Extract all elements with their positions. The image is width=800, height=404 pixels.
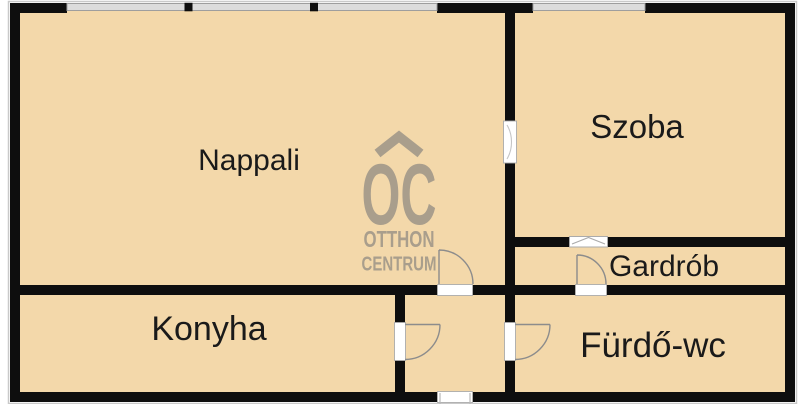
logo-name-line1: OTTHON [364,226,435,252]
floor-plan: OC OTTHON CENTRUM Nappali Szoba Gardrób … [0,0,800,404]
wall-bottom-1 [10,392,437,402]
wall-top-3 [645,3,795,13]
door-threshold-nappali [438,285,473,296]
door-threshold-konyha [395,323,406,361]
window-mullion-2 [310,3,318,12]
wall-mid-3 [607,285,795,295]
wall-left [10,3,20,402]
wall-gardrob-2 [607,237,795,247]
window-mullion-1 [185,3,193,12]
wall-mid-2 [473,285,575,295]
entry-door-threshold [438,392,473,403]
wall-right [785,3,795,402]
wall-mid-1 [10,285,437,295]
logo-name-line2: CENTRUM [362,254,437,276]
wall-top-2 [437,3,533,13]
wall-kitchen-1 [395,295,405,323]
wall-vertical-main-1 [505,13,515,121]
window-szoba [533,4,645,11]
door-threshold-gardrob [576,285,607,296]
room-label-furdo-wc: Fürdő-wc [580,326,726,365]
wall-kitchen-2 [395,360,405,392]
window-nappali [67,4,437,11]
wall-vertical-main-3 [505,295,515,323]
wall-vertical-main-2 [505,163,515,285]
door-threshold-furdo [505,323,516,361]
room-label-konyha: Konyha [151,310,266,348]
floorplan-canvas: OC OTTHON CENTRUM Nappali Szoba Gardrób … [0,0,800,404]
wall-top-1 [10,3,67,13]
room-label-nappali: Nappali [198,144,300,177]
wall-bottom-2 [473,392,795,402]
room-label-szoba: Szoba [590,108,684,145]
room-label-gardrob: Gardrób [609,250,719,283]
wall-vertical-main-4 [505,360,515,392]
otthon-centrum-logo: OC OTTHON CENTRUM [362,137,437,276]
wall-gardrob-1 [515,237,570,247]
door-szoba [504,121,517,163]
